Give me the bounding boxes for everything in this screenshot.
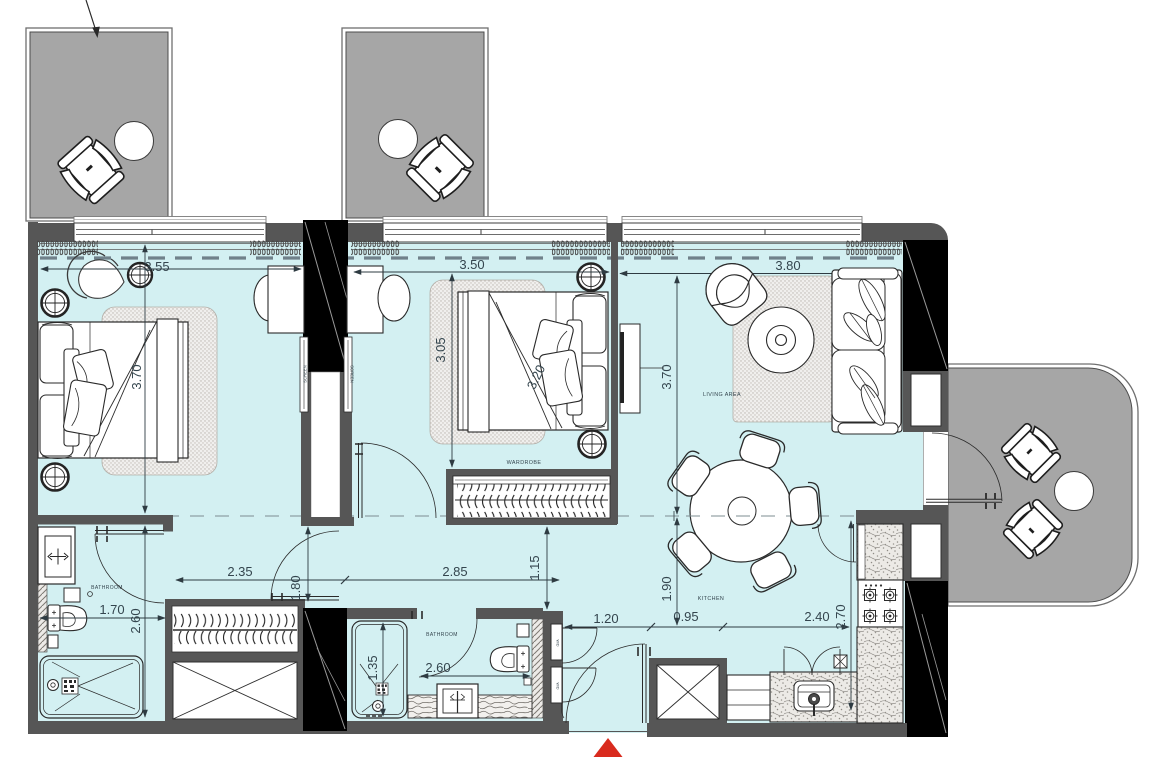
svg-text:KITCHEN: KITCHEN [698,596,724,602]
svg-text:1.90: 1.90 [659,576,674,601]
svg-text:1.15: 1.15 [527,555,542,580]
svg-text:SCREEN: SCREEN [350,365,355,382]
svg-text:WARDROBE: WARDROBE [507,460,542,466]
svg-text:3.05: 3.05 [433,337,448,362]
svg-text:3.70: 3.70 [659,364,674,389]
svg-text:1.35: 1.35 [365,655,380,680]
svg-text:1.20: 1.20 [593,611,618,626]
svg-text:2.40: 2.40 [804,609,829,624]
svg-text:3.50: 3.50 [459,257,484,272]
svg-text:2.35: 2.35 [227,564,252,579]
svg-text:1.80: 1.80 [288,575,303,600]
svg-text:3.70: 3.70 [129,364,144,389]
svg-text:2.60: 2.60 [128,608,143,633]
svg-text:BATHROOM: BATHROOM [426,632,458,638]
svg-text:2.60: 2.60 [425,660,450,675]
svg-text:2.70: 2.70 [833,604,848,629]
svg-text:W/D: W/D [556,683,560,690]
svg-text:3.80: 3.80 [775,258,800,273]
svg-text:LIVING AREA: LIVING AREA [703,392,741,398]
svg-text:0.95: 0.95 [673,609,698,624]
svg-text:W/D: W/D [556,640,560,647]
svg-text:3.55: 3.55 [144,259,169,274]
svg-text:1.70: 1.70 [99,602,124,617]
svg-text:2.85: 2.85 [442,564,467,579]
svg-text:SCREEN: SCREEN [303,365,308,382]
